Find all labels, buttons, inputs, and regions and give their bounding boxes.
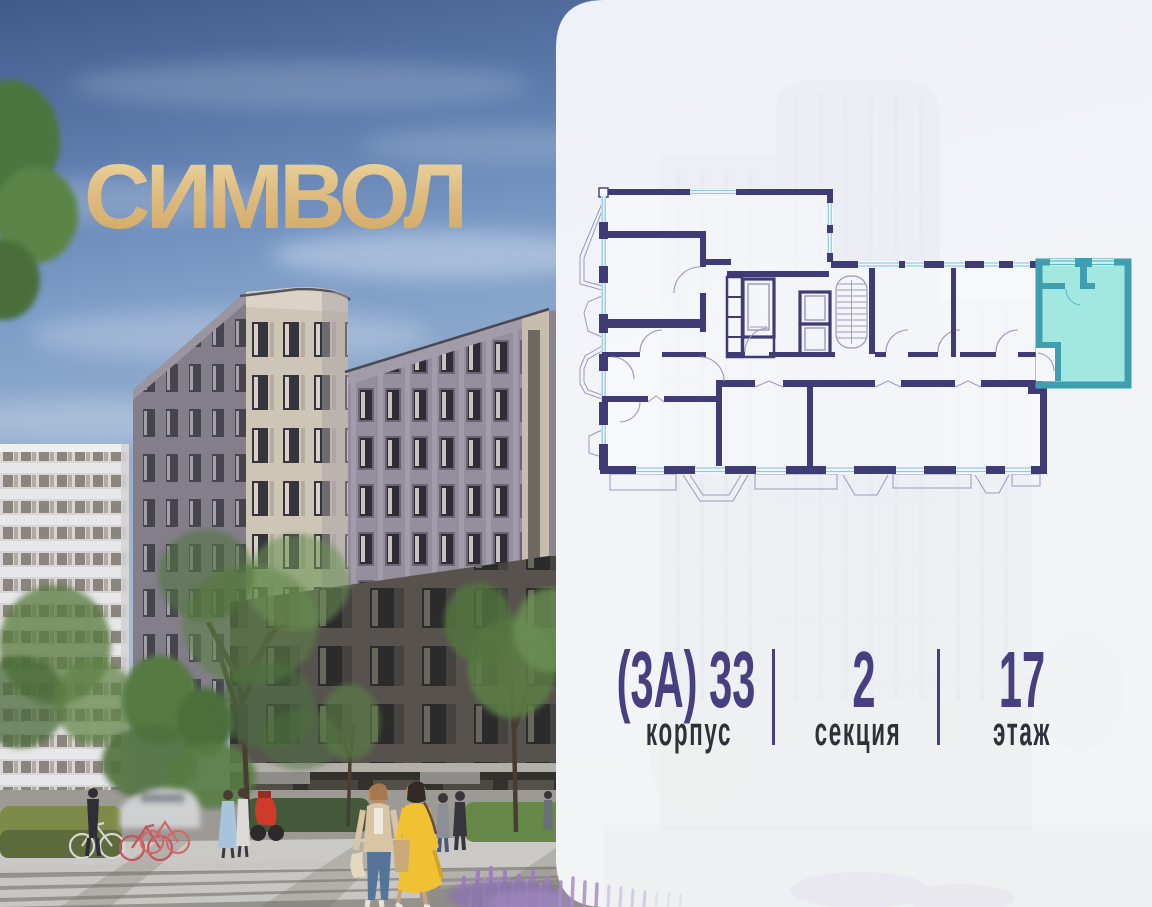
svg-text:корпус: корпус <box>646 709 732 753</box>
svg-text:секция: секция <box>815 709 902 753</box>
svg-text:этаж: этаж <box>993 709 1051 753</box>
svg-text:СИМВОЛ: СИМВОЛ <box>84 146 468 248</box>
